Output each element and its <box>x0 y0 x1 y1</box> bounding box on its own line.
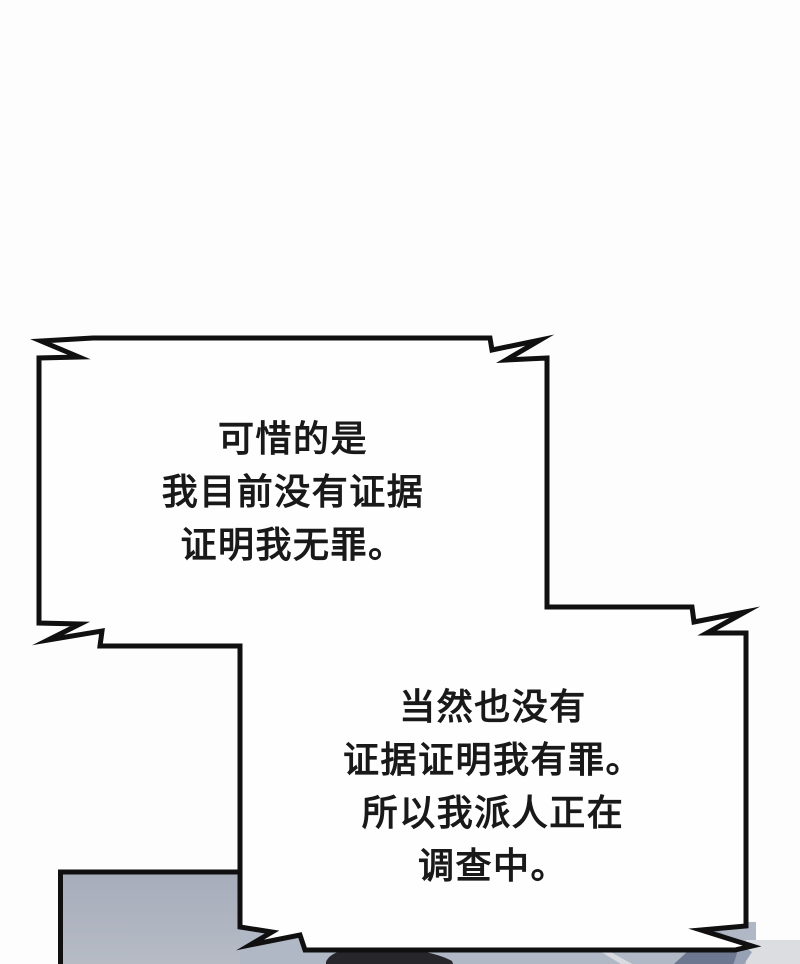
left-background-panel <box>58 870 248 964</box>
bubble-text-line: 我目前没有证据 <box>162 465 425 518</box>
bubble-text-line: 证明我无罪。 <box>180 518 405 571</box>
bubble-text-line: 证据证明我有罪。 <box>343 733 643 786</box>
speech-bubble-top: 可惜的是 我目前没有证据 证明我无罪。 <box>39 338 547 645</box>
speech-bubble-bottom: 当然也没有 证据证明我有罪。 所以我派人正在 调查中。 <box>240 607 746 950</box>
comic-page: 可惜的是 我目前没有证据 证明我无罪。 当然也没有 证据证明我有罪。 所以我派人… <box>0 0 800 964</box>
scene-corner-light <box>746 940 800 964</box>
bubble-text-line: 调查中。 <box>418 839 568 892</box>
bubble-text-line: 所以我派人正在 <box>362 786 625 839</box>
bubble-text-line: 当然也没有 <box>399 680 587 733</box>
bubble-text-line: 可惜的是 <box>218 412 368 465</box>
